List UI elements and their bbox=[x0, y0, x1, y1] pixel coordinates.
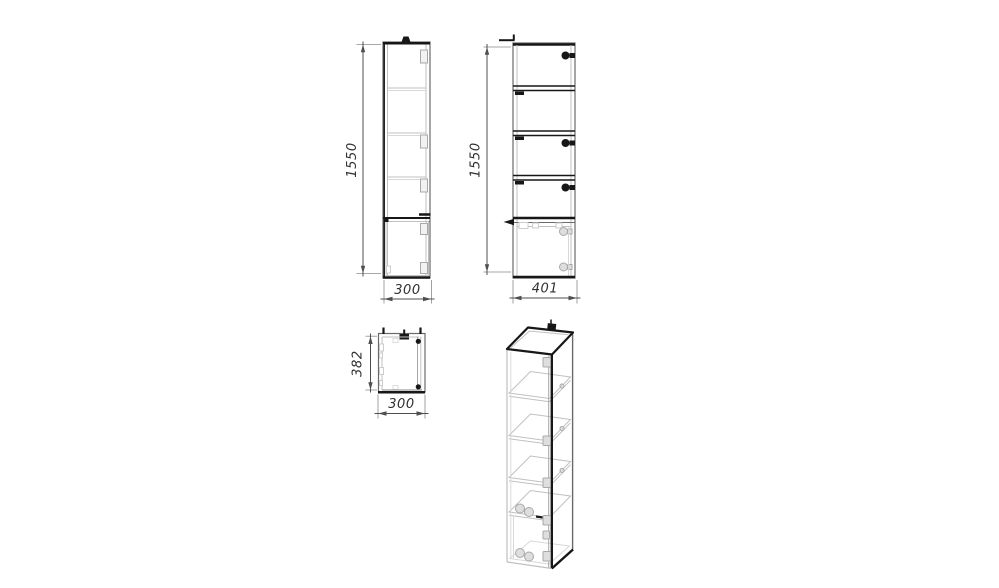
hinge-icon bbox=[570, 185, 576, 190]
hinge-icon bbox=[562, 184, 570, 192]
hinge-icon bbox=[570, 53, 576, 58]
side-outline bbox=[513, 43, 575, 278]
hinge-plate bbox=[543, 552, 551, 562]
front-outline bbox=[383, 42, 430, 278]
fitting-mark bbox=[393, 386, 398, 390]
side-height-dimension: 1550 bbox=[469, 44, 512, 275]
hinge-icon-light bbox=[560, 263, 568, 271]
hinge-dot bbox=[416, 339, 421, 344]
hinge-plate bbox=[543, 478, 551, 488]
front-view bbox=[383, 37, 431, 279]
top-width-dimension: 300 bbox=[375, 395, 429, 419]
dimension-label: 1550 bbox=[469, 142, 484, 177]
hinge-icon-light bbox=[560, 228, 568, 236]
dimension-label: 300 bbox=[394, 283, 421, 298]
dimension-label: 1550 bbox=[345, 142, 360, 177]
arrowhead bbox=[378, 411, 387, 415]
shelf-support bbox=[515, 137, 524, 141]
hinge-plate bbox=[421, 50, 428, 63]
door-fitting-mark bbox=[556, 223, 562, 228]
hinge-plate bbox=[543, 358, 551, 368]
door-fitting-mark bbox=[533, 223, 539, 228]
hinge-plate bbox=[421, 224, 428, 235]
arrowhead bbox=[569, 296, 578, 300]
door-corner-fitting bbox=[384, 218, 389, 223]
top-view bbox=[378, 328, 425, 393]
hinge-icon-light bbox=[516, 549, 525, 558]
front-width-dimension: 300 bbox=[381, 280, 435, 304]
arrowhead bbox=[368, 382, 372, 390]
fitting-mark bbox=[380, 353, 383, 358]
front-height-dimension: 1550 bbox=[345, 42, 381, 277]
hinge-plate bbox=[543, 436, 551, 446]
dimension-label: 401 bbox=[532, 282, 559, 297]
fitting-mark bbox=[380, 344, 384, 351]
arrowhead bbox=[423, 297, 432, 301]
arrowhead bbox=[417, 411, 426, 415]
arrowhead bbox=[485, 47, 489, 55]
fitting-mark bbox=[380, 368, 384, 375]
hinge-icon-light bbox=[516, 504, 525, 513]
hinge-icon-light bbox=[525, 552, 534, 561]
hinge-icon bbox=[562, 139, 570, 147]
door-fitting-mark bbox=[387, 266, 391, 273]
shelf-support bbox=[515, 92, 524, 96]
arrowhead bbox=[361, 266, 365, 274]
drawing-page: 1550 300 bbox=[0, 0, 999, 588]
wall-bracket bbox=[547, 323, 556, 330]
hinge-plate bbox=[421, 179, 428, 192]
side-width-dimension: 401 bbox=[510, 280, 581, 304]
hinge-plate bbox=[543, 531, 550, 539]
hinge-plate bbox=[421, 135, 428, 148]
fitting-mark bbox=[393, 339, 398, 343]
top-depth-dimension: 382 bbox=[351, 334, 378, 393]
side-view bbox=[499, 35, 575, 279]
hinge-icon-light bbox=[525, 508, 534, 517]
wall-bracket bbox=[402, 37, 411, 43]
hinge-icon bbox=[570, 141, 576, 146]
arrowhead bbox=[485, 264, 489, 272]
door-fitting-mark bbox=[519, 223, 528, 229]
shelf-support-dot bbox=[560, 384, 564, 388]
divider-left-fitting bbox=[504, 219, 515, 225]
hinge-plate bbox=[421, 263, 428, 274]
fitting-mark bbox=[380, 381, 383, 386]
arrowhead bbox=[384, 297, 393, 301]
isometric-view bbox=[507, 320, 573, 569]
shelf-support bbox=[515, 181, 524, 185]
hinge-dot bbox=[416, 384, 421, 389]
hinge-plate bbox=[543, 516, 551, 526]
shelf-support-dot bbox=[560, 469, 564, 473]
arrowhead bbox=[361, 45, 365, 53]
hinge-icon bbox=[562, 52, 570, 60]
dimension-label: 300 bbox=[388, 397, 415, 412]
dimension-label: 382 bbox=[351, 350, 366, 377]
technical-drawing-canvas: 1550 300 bbox=[0, 0, 999, 588]
arrowhead bbox=[368, 336, 372, 344]
arrowhead bbox=[513, 296, 522, 300]
shelf-support-dot bbox=[560, 427, 564, 431]
